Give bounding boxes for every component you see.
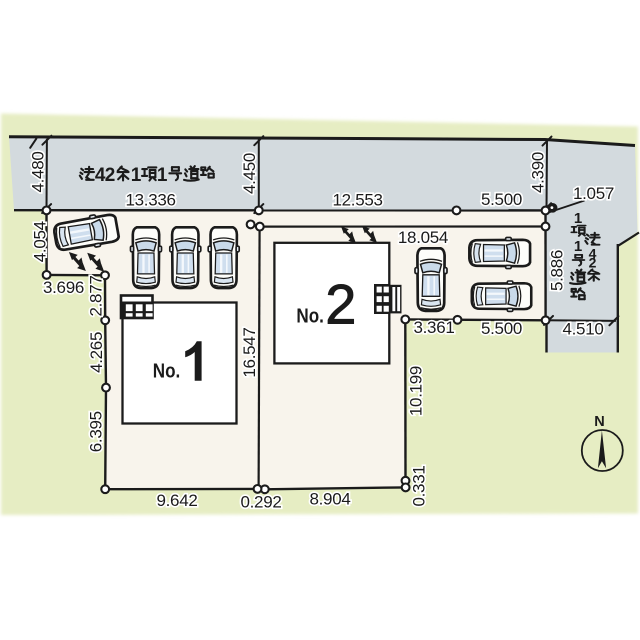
svg-text:1.057: 1.057: [573, 184, 614, 203]
svg-text:4.265: 4.265: [87, 332, 106, 373]
svg-text:0.331: 0.331: [410, 465, 429, 506]
svg-text:0.292: 0.292: [240, 493, 281, 512]
svg-text:4.450: 4.450: [240, 153, 259, 194]
svg-text:3.696: 3.696: [43, 278, 84, 297]
svg-text:13.336: 13.336: [125, 191, 175, 210]
svg-text:No.: No.: [296, 305, 324, 328]
svg-text:5.886: 5.886: [548, 250, 567, 291]
svg-text:10.199: 10.199: [407, 366, 426, 416]
svg-text:No.: No.: [153, 359, 181, 382]
svg-text:9.642: 9.642: [156, 491, 197, 510]
svg-text:5.500: 5.500: [481, 319, 522, 338]
svg-text:6.395: 6.395: [87, 411, 106, 452]
svg-text:2: 2: [325, 273, 356, 336]
svg-text:1: 1: [131, 165, 142, 186]
svg-text:3.361: 3.361: [413, 318, 454, 337]
svg-text:1: 1: [157, 165, 168, 186]
svg-text:5.500: 5.500: [481, 190, 522, 209]
svg-text:1: 1: [574, 210, 582, 227]
svg-text:1: 1: [574, 238, 582, 255]
svg-text:2.877: 2.877: [86, 275, 105, 316]
svg-text:18.054: 18.054: [398, 228, 448, 247]
svg-text:4.510: 4.510: [562, 320, 603, 339]
svg-text:16.547: 16.547: [240, 327, 259, 377]
svg-text:8.904: 8.904: [309, 490, 350, 509]
svg-text:4.054: 4.054: [31, 221, 50, 262]
svg-text:N: N: [594, 414, 604, 430]
svg-text:4.390: 4.390: [529, 152, 548, 193]
svg-text:2: 2: [589, 255, 597, 271]
svg-text:4.480: 4.480: [29, 151, 48, 192]
svg-text:12.553: 12.553: [332, 190, 382, 209]
svg-text:2: 2: [105, 165, 116, 186]
